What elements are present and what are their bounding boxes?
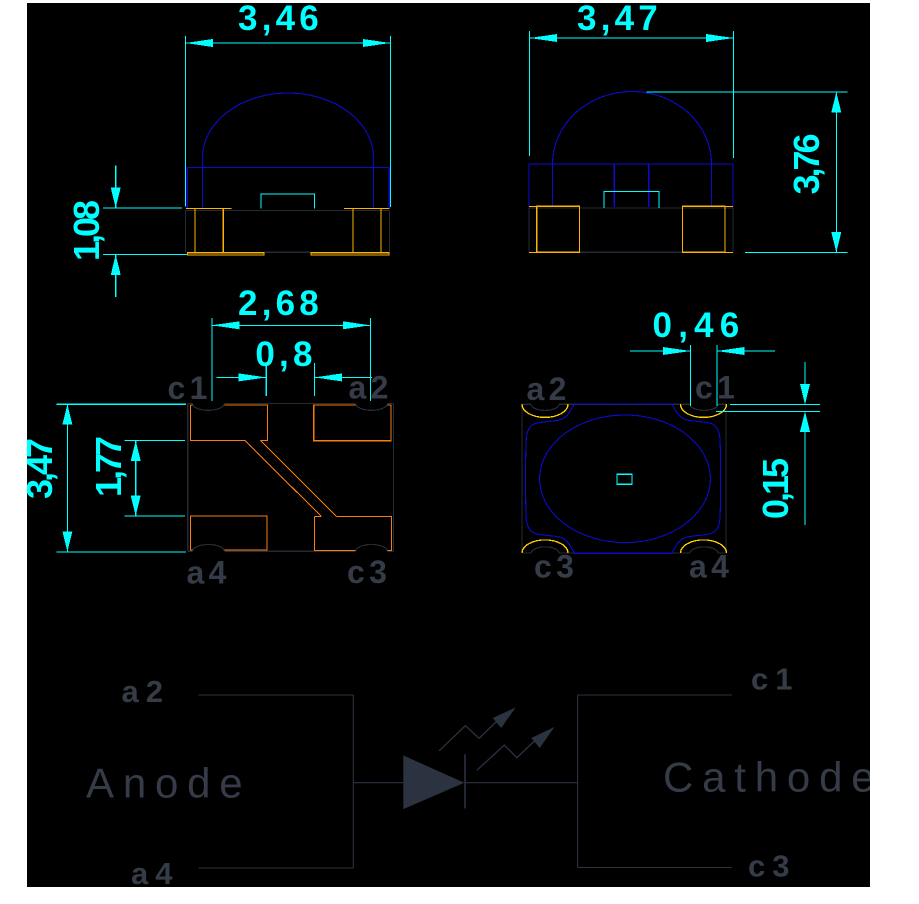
svg-text:a4: a4 [187, 555, 231, 591]
svg-text:0,8: 0,8 [255, 335, 316, 374]
svg-text:a2: a2 [349, 370, 393, 406]
svg-text:Cathode: Cathode [663, 754, 883, 801]
svg-text:0,46: 0,46 [653, 306, 746, 345]
svg-text:c3: c3 [748, 849, 796, 884]
svg-text:1,08: 1,08 [66, 201, 107, 261]
svg-text:a4: a4 [689, 549, 733, 585]
svg-text:3,76: 3,76 [786, 134, 827, 194]
svg-text:c3: c3 [534, 549, 578, 585]
svg-text:a2: a2 [122, 674, 170, 709]
svg-text:c1: c1 [168, 370, 212, 406]
svg-text:a2: a2 [527, 371, 571, 407]
svg-text:2,68: 2,68 [238, 284, 323, 323]
svg-text:c3: c3 [347, 554, 391, 590]
svg-text:3,47: 3,47 [577, 0, 662, 38]
svg-text:3,46: 3,46 [238, 0, 323, 38]
svg-text:1,77: 1,77 [88, 437, 129, 497]
svg-text:a4: a4 [131, 856, 179, 891]
svg-text:0,15: 0,15 [755, 458, 796, 519]
svg-text:c1: c1 [751, 662, 799, 697]
svg-text:Anode: Anode [86, 759, 251, 806]
